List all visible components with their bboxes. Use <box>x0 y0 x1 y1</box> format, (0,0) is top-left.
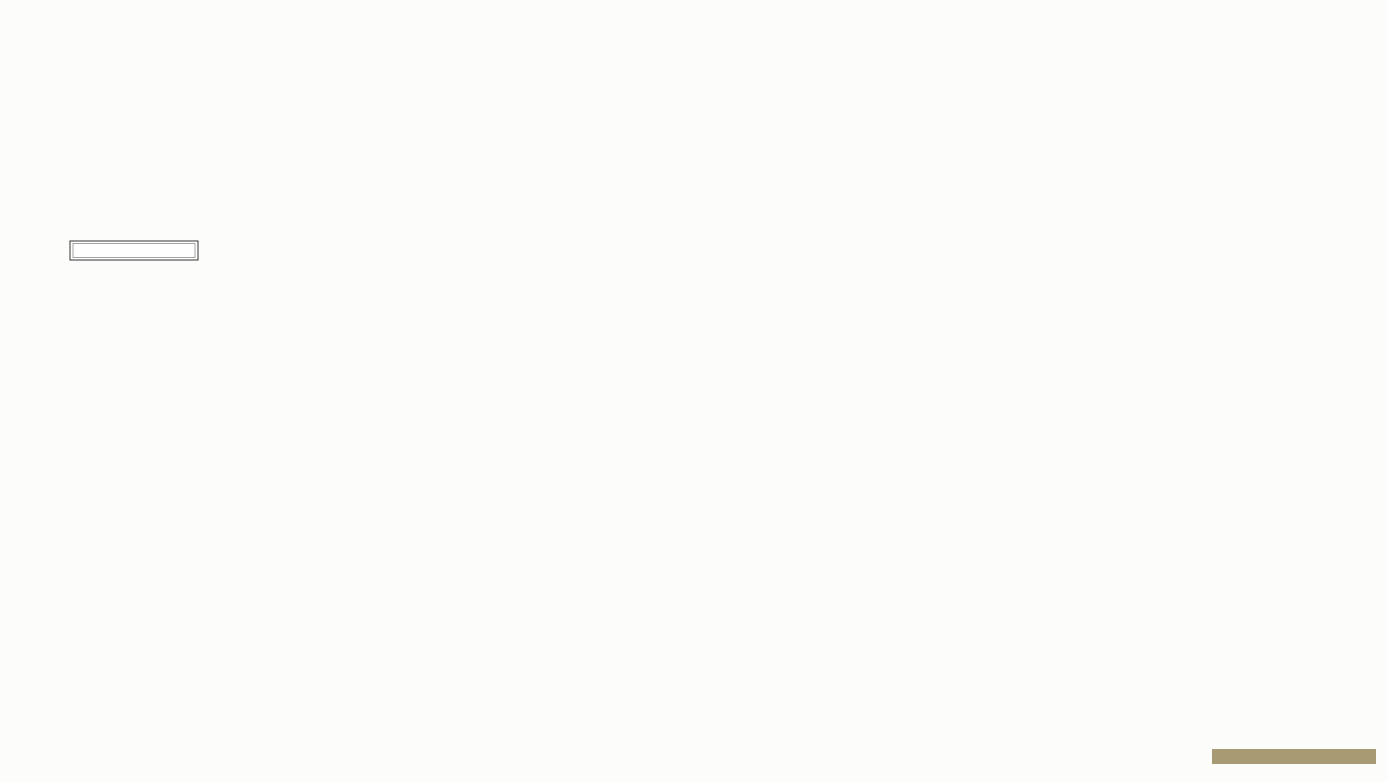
fortuna-real-logo <box>1212 749 1376 764</box>
floor-plan-canvas <box>0 0 1388 782</box>
logo-bar <box>1212 749 1376 764</box>
title-block <box>70 241 198 260</box>
floor-plan-page <box>0 0 1388 782</box>
storey-height-box <box>70 241 198 260</box>
